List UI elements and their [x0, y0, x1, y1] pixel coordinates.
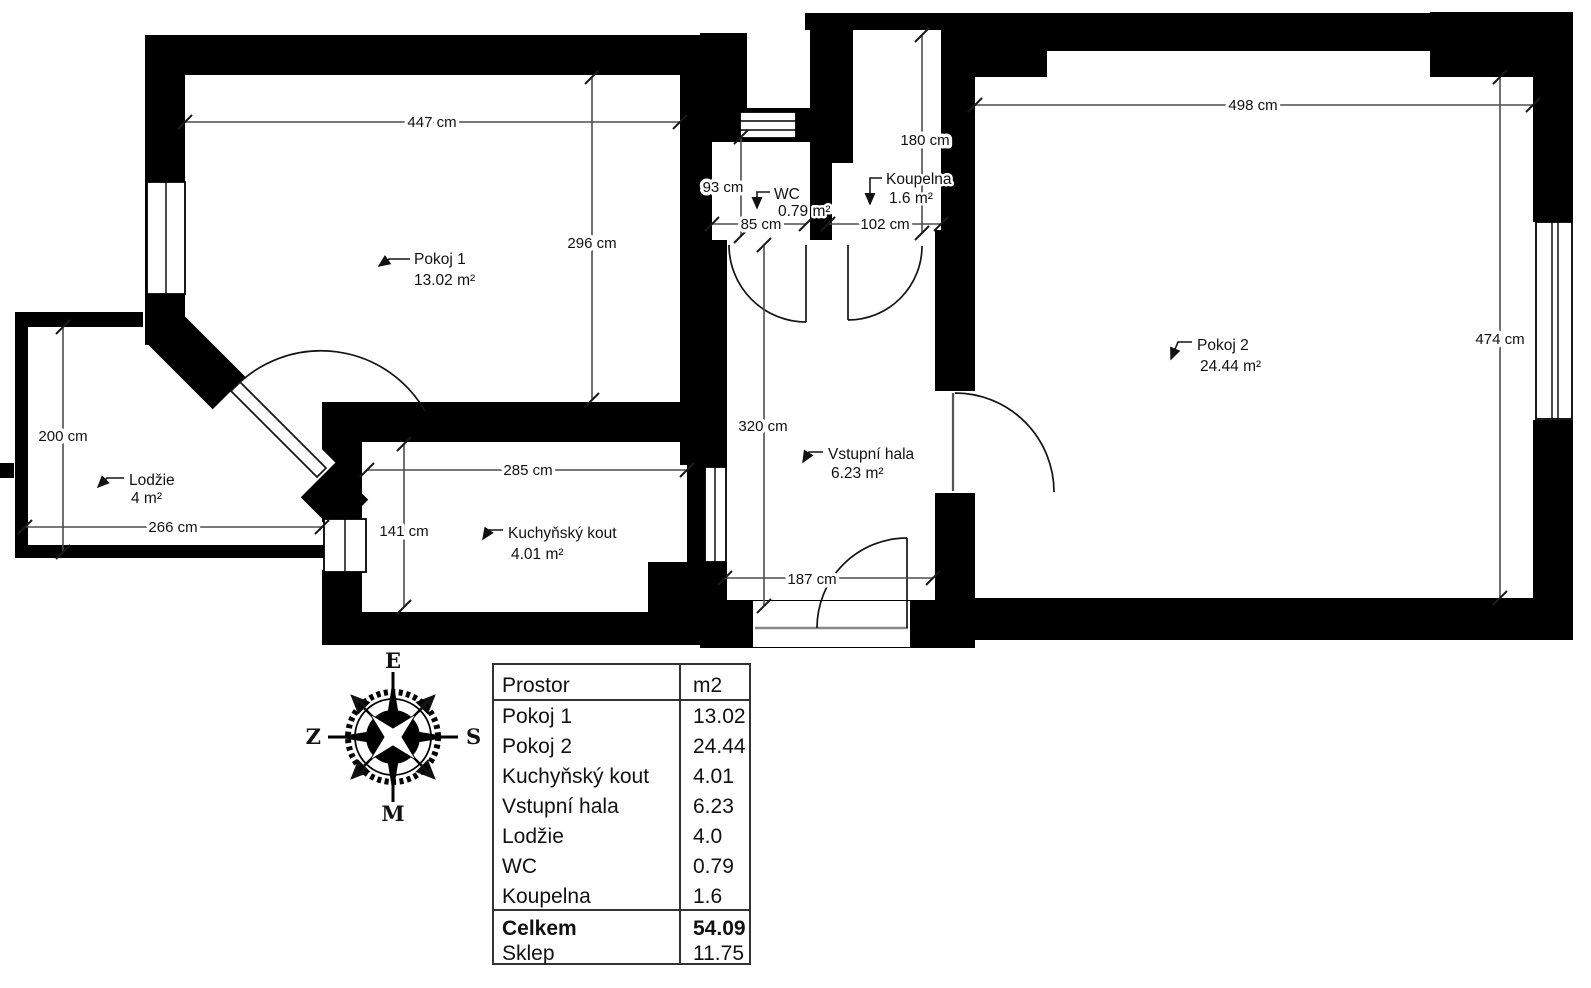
- table-header-m2: m2: [693, 674, 722, 697]
- compass-letter-bottom: M: [381, 801, 404, 826]
- wall-hala-right-lower: [935, 492, 975, 610]
- room-label-pokoj1: Pokoj 1 13.02 m²: [379, 251, 475, 289]
- svg-text:Vstupní hala: Vstupní hala: [828, 446, 915, 463]
- table-row: Kuchyňský kout 4.01: [502, 765, 734, 788]
- window-pokoj2-right: [1536, 222, 1572, 419]
- dim-pokoj1-height: 296 cm: [567, 70, 616, 407]
- wall-pokoj2-top-alcove: [1047, 13, 1430, 51]
- table-row: Vstupní hala 6.23: [502, 795, 734, 818]
- svg-text:WC: WC: [774, 186, 800, 203]
- room-label-koupelna: Koupelna 1.6 m²: [870, 171, 952, 207]
- svg-text:4.01: 4.01: [693, 765, 734, 788]
- room-label-lodzie: Lodžie 4 m²: [98, 472, 175, 507]
- wall-pokoj2-top-right-pier: [1430, 12, 1535, 77]
- svg-text:Lodžie: Lodžie: [502, 825, 564, 848]
- wall-kuchyn-right-back: [687, 442, 705, 564]
- room-label-vstupni-hala: Vstupní hala 6.23 m²: [803, 446, 915, 482]
- svg-text:Sklep: Sklep: [502, 942, 555, 965]
- dim-kuchyn-width: 285 cm: [360, 462, 694, 479]
- svg-text:285 cm: 285 cm: [503, 462, 552, 479]
- svg-text:Pokoj 2: Pokoj 2: [502, 735, 572, 758]
- svg-text:141 cm: 141 cm: [379, 523, 428, 540]
- dim-pokoj2-height: 474 cm: [1475, 70, 1524, 605]
- svg-text:187 cm: 187 cm: [787, 571, 836, 588]
- svg-text:102 cm: 102 cm: [860, 216, 909, 233]
- floor-plan-drawing: 447 cm 296 cm 93 cm 85 cm 102 cm 180 cm: [0, 0, 1591, 988]
- svg-text:85 cm: 85 cm: [741, 216, 782, 233]
- svg-text:Pokoj 1: Pokoj 1: [414, 251, 466, 268]
- svg-text:WC: WC: [502, 855, 537, 878]
- svg-text:320 cm: 320 cm: [738, 418, 787, 435]
- wall-lodzie-top: [15, 312, 143, 327]
- wall-lodzie-bottom: [15, 545, 327, 558]
- compass-rose: E S M Z: [306, 648, 482, 826]
- svg-text:24.44: 24.44: [693, 735, 746, 758]
- wall-pokoj1-hala: [680, 240, 727, 465]
- wall-stub-left-edge: [0, 463, 14, 478]
- dim-koupelna-width: 102 cm: [821, 216, 948, 233]
- floor-plan-page: 447 cm 296 cm 93 cm 85 cm 102 cm 180 cm: [0, 0, 1591, 988]
- svg-text:54.09: 54.09: [693, 917, 746, 940]
- wall-lodzie-left: [15, 312, 28, 558]
- svg-text:498 cm: 498 cm: [1228, 97, 1277, 114]
- wall-koupelna-top: [805, 13, 955, 30]
- room-label-kuchynsky-kout: Kuchyňský kout 4.01 m²: [483, 525, 617, 563]
- table-header-prostor: Prostor: [502, 674, 570, 697]
- table-row: WC 0.79: [502, 855, 734, 878]
- wall-pokoj2-top-left-pier: [941, 13, 1047, 77]
- svg-text:266 cm: 266 cm: [148, 519, 197, 536]
- svg-text:474 cm: 474 cm: [1475, 331, 1524, 348]
- svg-text:447 cm: 447 cm: [407, 114, 456, 131]
- door-koupelna: [848, 245, 922, 320]
- svg-text:Pokoj 2: Pokoj 2: [1197, 337, 1249, 354]
- walls: [0, 12, 1573, 648]
- svg-text:Koupelna: Koupelna: [886, 171, 952, 188]
- wall-kuchyn-bottom: [322, 612, 710, 645]
- svg-text:180 cm: 180 cm: [900, 132, 949, 149]
- table-header-row: Prostor m2: [502, 674, 722, 697]
- window-wc-top: [740, 112, 796, 138]
- compass-letter-left: Z: [306, 724, 321, 749]
- wall-kuchyn-left-upper: [322, 442, 362, 522]
- svg-text:6.23: 6.23: [693, 795, 734, 818]
- svg-text:4.01 m²: 4.01 m²: [511, 546, 564, 563]
- svg-text:6.23 m²: 6.23 m²: [831, 465, 884, 482]
- svg-text:Lodžie: Lodžie: [129, 472, 175, 489]
- svg-text:296 cm: 296 cm: [567, 235, 616, 252]
- dim-pokoj1-width: 447 cm: [178, 114, 687, 131]
- wall-wc-koupelna-pier: [810, 13, 853, 163]
- window-kuchyn-hala: [705, 467, 726, 562]
- svg-text:Koupelna: Koupelna: [502, 885, 591, 908]
- area-table: Prostor m2 Pokoj 1 13.02 Pokoj 2 24.44 K…: [493, 664, 750, 965]
- window-kuchyn-left: [324, 519, 366, 572]
- svg-text:1.6: 1.6: [693, 885, 722, 908]
- table-row: Lodžie 4.0: [502, 825, 722, 848]
- dim-lodzie-height: 200 cm: [38, 320, 87, 559]
- window-pokoj1-left: [147, 182, 185, 294]
- svg-text:1.6 m²: 1.6 m²: [889, 190, 933, 207]
- svg-text:Vstupní hala: Vstupní hala: [502, 795, 619, 818]
- wall-wc-notch-left: [700, 33, 747, 110]
- wall-pokoj1-kuchyn: [322, 402, 687, 442]
- compass-letter-top: E: [385, 648, 401, 673]
- room-label-pokoj2: Pokoj 2 24.44 m²: [1171, 337, 1261, 375]
- wall-hala-right-upper: [935, 230, 975, 393]
- wall-pokoj2-right-upper: [1533, 12, 1573, 222]
- svg-text:Celkem: Celkem: [502, 917, 577, 940]
- opening-lodzie-door: [229, 393, 317, 481]
- svg-text:Kuchyňský kout: Kuchyňský kout: [508, 525, 617, 542]
- table-total-row: Celkem 54.09: [502, 917, 746, 940]
- dim-lodzie-width: 266 cm: [18, 519, 329, 536]
- table-basement-row: Sklep 11.75: [502, 942, 744, 965]
- svg-text:4 m²: 4 m²: [131, 490, 162, 507]
- svg-text:13.02: 13.02: [693, 705, 746, 728]
- opening-koupelna-door: [846, 235, 922, 247]
- svg-text:11.75: 11.75: [693, 942, 744, 965]
- svg-text:0.79 m²: 0.79 m²: [778, 203, 831, 220]
- svg-text:93 cm: 93 cm: [703, 179, 744, 196]
- svg-text:4.0: 4.0: [693, 825, 722, 848]
- svg-text:Kuchyňský kout: Kuchyňský kout: [502, 765, 649, 788]
- svg-text:200 cm: 200 cm: [38, 428, 87, 445]
- compass-letter-right: S: [466, 724, 481, 749]
- table-row: Pokoj 2 24.44: [502, 735, 746, 758]
- svg-text:24.44 m²: 24.44 m²: [1200, 358, 1261, 375]
- svg-text:0.79: 0.79: [693, 855, 734, 878]
- room-labels: Pokoj 1 13.02 m² Pokoj 2 24.44 m² Kuchyň…: [98, 171, 1261, 563]
- svg-text:13.02 m²: 13.02 m²: [414, 272, 475, 289]
- wall-pokoj2-bottom: [935, 598, 1573, 640]
- dim-kuchyn-height: 141 cm: [379, 437, 428, 614]
- table-row: Pokoj 1 13.02: [502, 705, 746, 728]
- opening-entrance: [753, 601, 910, 647]
- door-wc: [729, 245, 806, 322]
- dim-pokoj2-width: 498 cm: [968, 97, 1540, 114]
- opening-pokoj2-door: [933, 391, 977, 493]
- wall-pokoj1-top: [145, 35, 705, 75]
- svg-text:Pokoj 1: Pokoj 1: [502, 705, 572, 728]
- table-row: Koupelna 1.6: [502, 885, 722, 908]
